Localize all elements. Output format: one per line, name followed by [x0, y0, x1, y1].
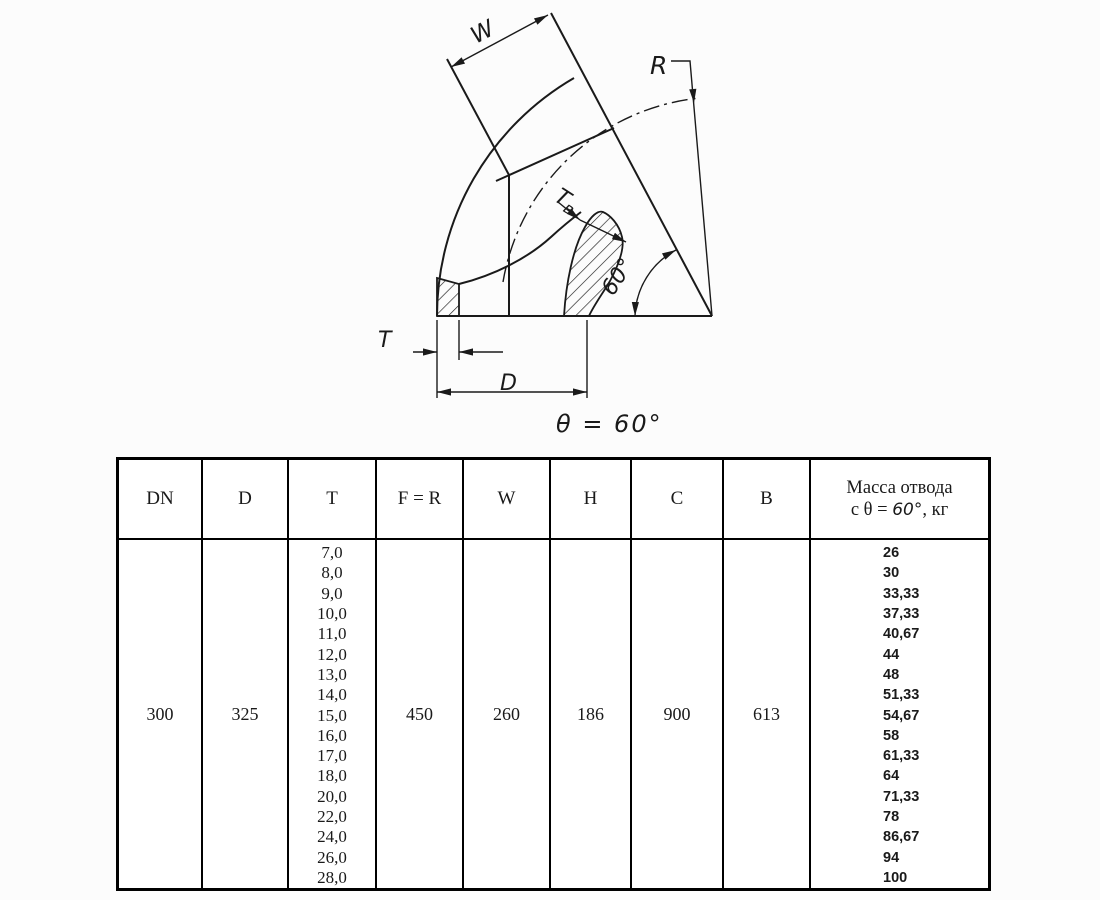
col-header-d: D	[203, 460, 289, 540]
t-value-line: 13,0	[289, 665, 375, 685]
w-dimension-line	[451, 15, 548, 67]
angle-dimension-arc	[635, 250, 676, 316]
mass-value-line: 54,67	[811, 705, 988, 725]
t-value-line: 11,0	[289, 624, 375, 644]
col-header-mass: Масса отвода с θ = 60°, кг	[811, 460, 988, 540]
col-header-fr: F = R	[377, 460, 464, 540]
t-value-line: 14,0	[289, 685, 375, 705]
mass-header-line1: Масса отвода	[846, 477, 952, 499]
value-fr: 450	[377, 540, 464, 888]
mass-value-line: 58	[811, 726, 988, 746]
straight-section-left-edge	[447, 59, 509, 175]
t-value-line: 7,0	[289, 543, 375, 563]
bore-curve	[459, 212, 581, 284]
t-value-line: 20,0	[289, 787, 375, 807]
t-value-line: 15,0	[289, 705, 375, 725]
mass-value-line: 40,67	[811, 624, 988, 644]
mass-header-line2: с θ = 60°, кг	[851, 499, 948, 521]
dimensions-table: DN D T F = R W H C B Масса отвода с θ = …	[116, 457, 991, 891]
d-dimension-label: D	[500, 371, 517, 396]
t-value-line: 24,0	[289, 827, 375, 847]
t-value-line: 18,0	[289, 766, 375, 786]
col-header-h: H	[551, 460, 632, 540]
mass-value-line: 51,33	[811, 685, 988, 705]
theta-caption: θ = 60°	[556, 410, 663, 438]
t-value-line: 17,0	[289, 746, 375, 766]
mass-value-line: 71,33	[811, 787, 988, 807]
left-wall-section	[437, 278, 459, 316]
mass-value-line: 61,33	[811, 746, 988, 766]
mass-value-line: 78	[811, 807, 988, 827]
t-value-line: 8,0	[289, 563, 375, 583]
col-header-w: W	[464, 460, 551, 540]
mass-value-line: 33,33	[811, 584, 988, 604]
mass-value-line: 30	[811, 563, 988, 583]
value-h: 186	[551, 540, 632, 888]
radius-leader-arrowhead	[689, 89, 697, 104]
mass-value-line: 48	[811, 665, 988, 685]
elbow-drawing: W R Тв 60° T D θ = 60°	[0, 0, 1100, 455]
outer-arc	[437, 78, 574, 316]
value-t-list: 7,08,09,010,011,012,013,014,015,016,017,…	[289, 540, 377, 888]
t-value-line: 22,0	[289, 807, 375, 827]
t-value-line: 28,0	[289, 868, 375, 888]
value-c: 900	[632, 540, 724, 888]
mass-value-line: 86,67	[811, 827, 988, 847]
value-w: 260	[464, 540, 551, 888]
col-header-b: B	[724, 460, 811, 540]
mass-value-line: 26	[811, 543, 988, 563]
value-b: 613	[724, 540, 811, 888]
catalog-page: W R Тв 60° T D θ = 60° DN D T F = R W H …	[0, 0, 1100, 900]
t-value-line: 12,0	[289, 644, 375, 664]
t-value-line: 16,0	[289, 726, 375, 746]
t-dimension-label: T	[378, 328, 393, 353]
value-mass-list: 263033,3337,3340,67444851,3354,675861,33…	[811, 540, 988, 888]
value-d: 325	[203, 540, 289, 888]
mass-value-line: 94	[811, 847, 988, 867]
mass-value-line: 64	[811, 766, 988, 786]
value-dn: 300	[119, 540, 203, 888]
mass-value-line: 37,33	[811, 604, 988, 624]
col-header-dn: DN	[119, 460, 203, 540]
t-value-line: 9,0	[289, 584, 375, 604]
mass-value-line: 44	[811, 644, 988, 664]
col-header-t: T	[289, 460, 377, 540]
t-value-line: 26,0	[289, 847, 375, 867]
mass-value-line: 100	[811, 868, 988, 888]
radius-label: R	[650, 51, 667, 80]
col-header-c: C	[632, 460, 724, 540]
t-value-line: 10,0	[289, 604, 375, 624]
